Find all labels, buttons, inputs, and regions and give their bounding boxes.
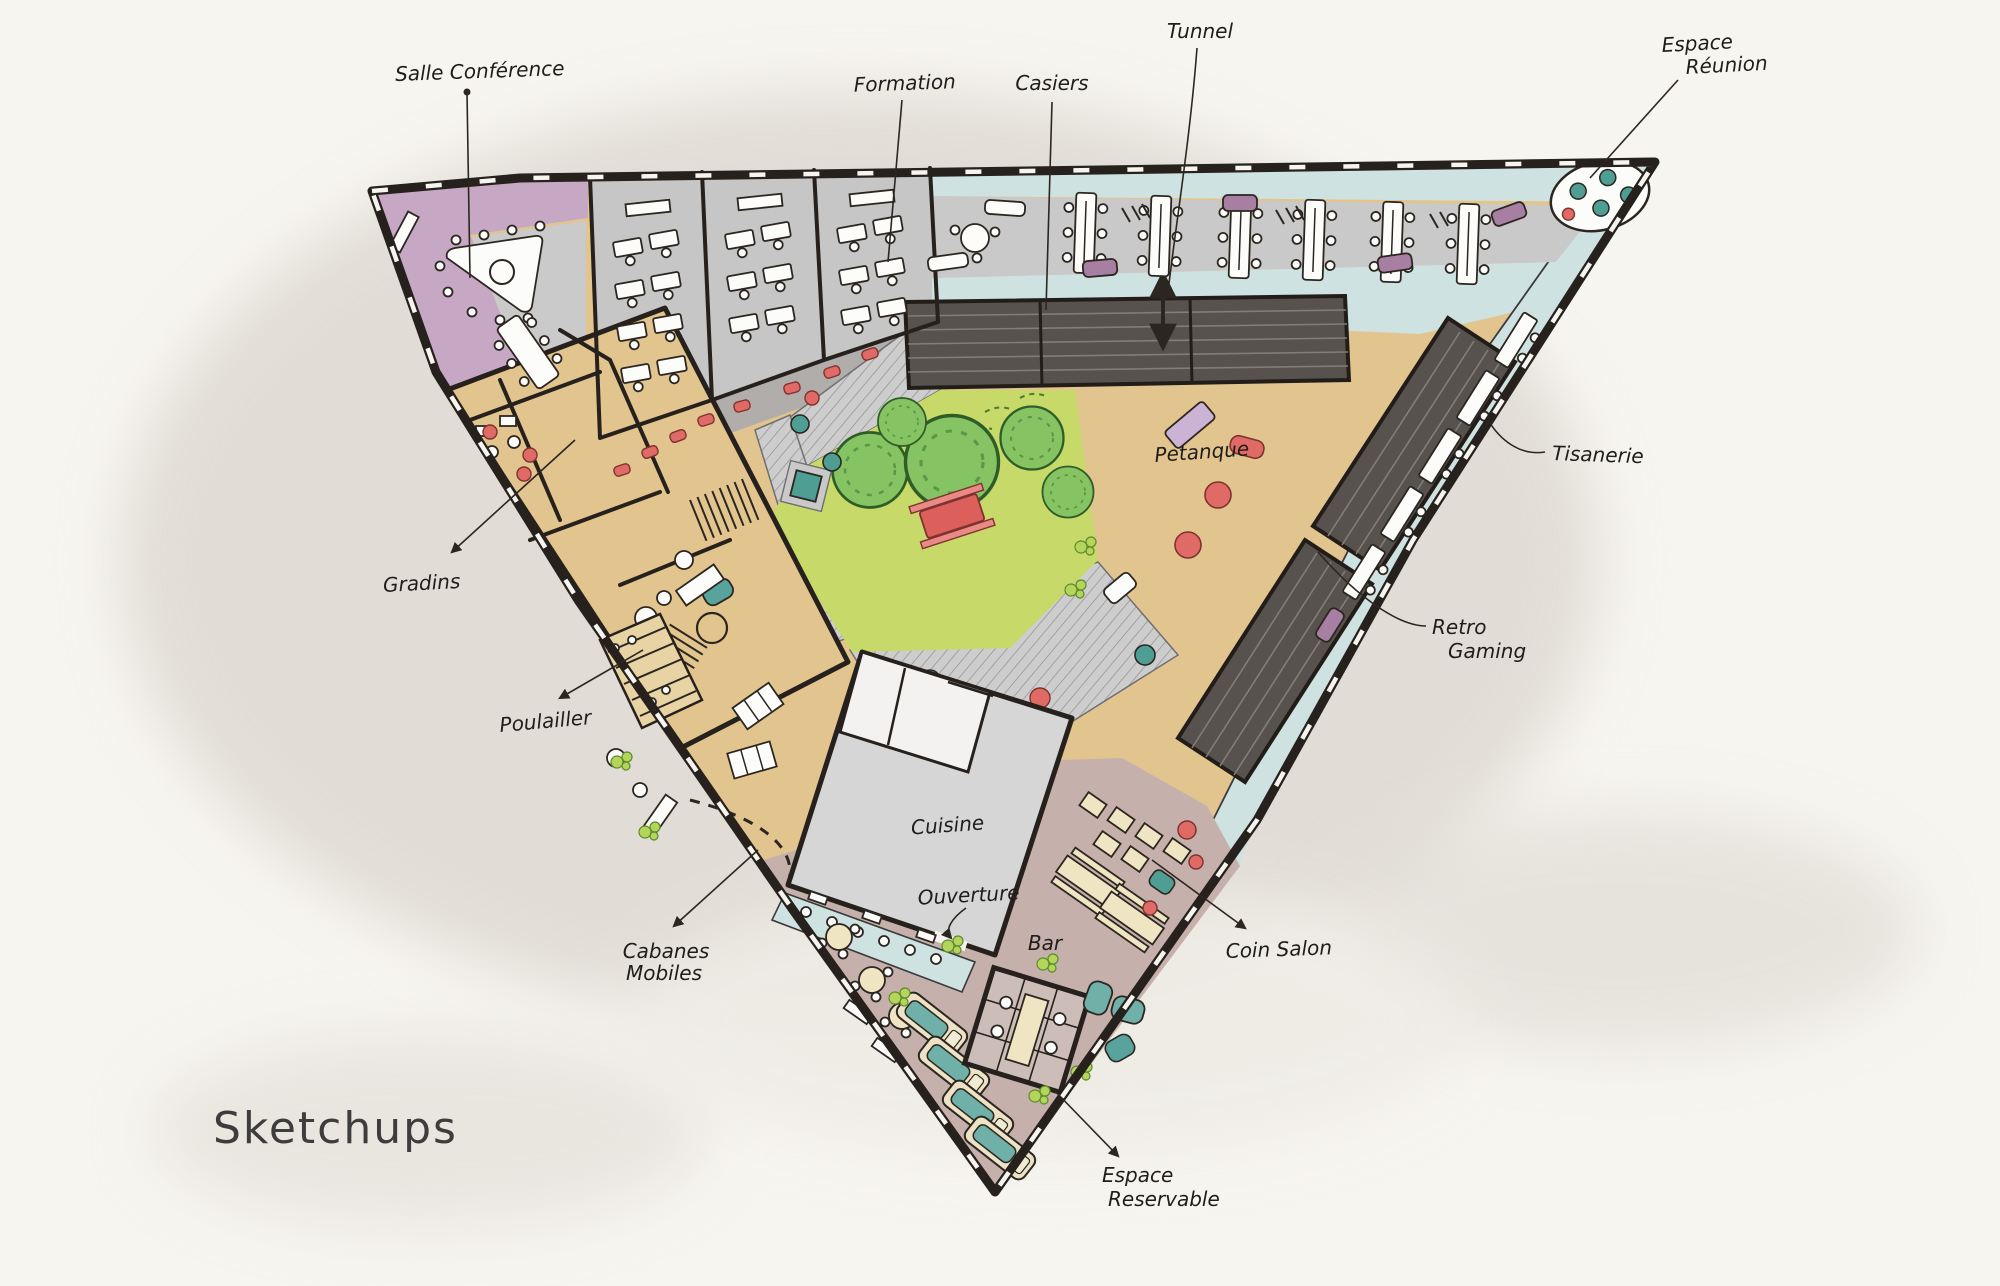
label-formation: Formation bbox=[853, 69, 956, 97]
label-cuisine: Cuisine bbox=[910, 810, 985, 839]
label-tunnel: Tunnel bbox=[1167, 19, 1234, 43]
svg-text:Reservable: Reservable bbox=[1108, 1187, 1220, 1211]
label-gradins: Gradins bbox=[382, 569, 460, 597]
page-title: Sketchups bbox=[213, 1103, 458, 1154]
svg-text:Réunion: Réunion bbox=[1685, 51, 1768, 79]
label-coin-salon: Coin Salon bbox=[1225, 935, 1332, 963]
label-bar: Bar bbox=[1028, 931, 1064, 955]
svg-text:Retro: Retro bbox=[1432, 615, 1487, 639]
label-casiers: Casiers bbox=[1015, 71, 1088, 95]
label-tisanerie: Tisanerie bbox=[1552, 441, 1644, 468]
svg-text:Mobiles: Mobiles bbox=[626, 961, 702, 985]
sketch-page: Salle Conférence Formation Casiers Tunne… bbox=[0, 0, 2000, 1286]
svg-text:Cabanes: Cabanes bbox=[623, 939, 710, 963]
floorplan-canvas: Salle Conférence Formation Casiers Tunne… bbox=[0, 0, 2000, 1286]
svg-text:Gaming: Gaming bbox=[1448, 639, 1526, 663]
svg-text:Espace: Espace bbox=[1102, 1163, 1173, 1187]
garden-sandbox bbox=[781, 461, 832, 512]
label-cabanes-mobiles: Cabanes Mobiles bbox=[623, 939, 710, 985]
